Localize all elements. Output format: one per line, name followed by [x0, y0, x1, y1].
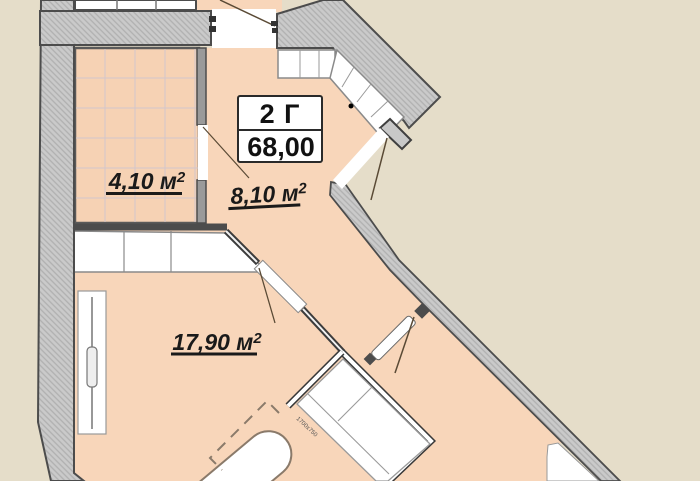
- svg-text:68,00: 68,00: [247, 132, 315, 162]
- svg-text:17,90 м2: 17,90 м2: [172, 329, 262, 355]
- svg-text:2 Г: 2 Г: [260, 99, 301, 129]
- svg-text:4,10 м2: 4,10 м2: [108, 168, 186, 194]
